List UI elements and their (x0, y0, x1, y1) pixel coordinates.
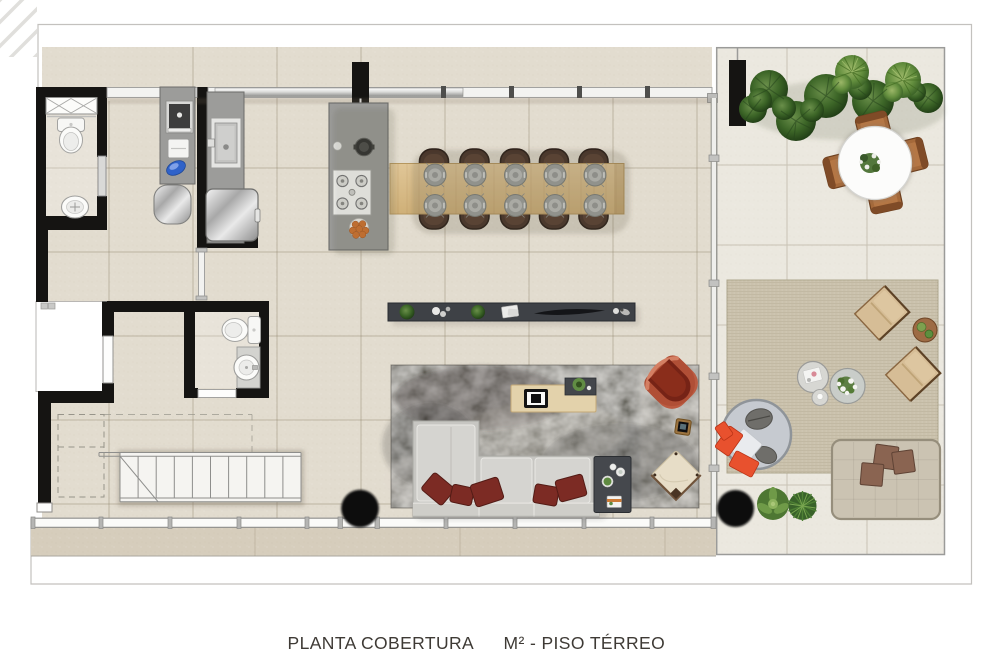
svg-text:M² - PISO TÉRREO: M² - PISO TÉRREO (504, 633, 666, 653)
svg-text:PLANTA COBERTURA: PLANTA COBERTURA (288, 633, 475, 653)
